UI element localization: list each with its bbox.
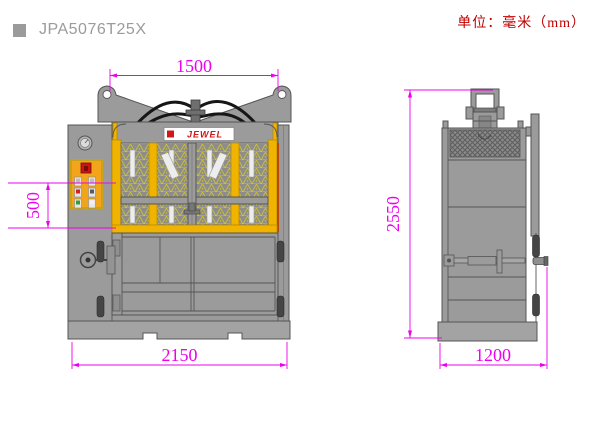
panel-key-switch <box>89 188 96 197</box>
cage-mid-post-right <box>231 143 239 225</box>
lug-hole-right <box>278 91 286 99</box>
technical-drawing: JEWEL <box>0 0 600 433</box>
side-mesh-panel <box>450 130 520 157</box>
dimension-value-overall-height: 2550 <box>383 196 403 232</box>
door-hinge <box>277 296 284 317</box>
side-door-hinges <box>533 233 549 322</box>
panel-button-red <box>75 188 82 197</box>
panel-button <box>75 177 82 186</box>
pressure-gauge-icon <box>78 136 92 150</box>
dimension-front-base-width: 2150 <box>72 342 287 369</box>
dimension-front-top-width: 1500 <box>110 56 278 91</box>
door-hinge <box>97 296 104 317</box>
cage-column-left <box>112 140 121 232</box>
front-view: JEWEL <box>68 86 291 339</box>
dimension-value-top-width: 1500 <box>176 56 212 76</box>
control-panel <box>71 160 102 208</box>
side-view <box>438 89 548 341</box>
front-base <box>68 321 290 339</box>
panel-button-green <box>75 199 82 208</box>
brand-logo-icon <box>167 131 174 138</box>
side-guide-channel <box>531 114 539 236</box>
latch-handle <box>497 250 502 273</box>
cage-mid-post-left <box>149 143 157 225</box>
dimension-value-depth: 1200 <box>475 345 511 365</box>
door-hinge <box>97 241 104 262</box>
brand-logo-text: JEWEL <box>187 130 223 140</box>
panel-button <box>89 177 96 186</box>
panel-button <box>89 199 96 208</box>
cage-column-right <box>268 140 277 232</box>
cage-sill <box>112 225 277 233</box>
door-hinge <box>277 241 284 262</box>
dimension-value-base-width: 2150 <box>162 345 198 365</box>
dimension-value-feed-opening: 500 <box>23 192 43 219</box>
side-base <box>438 322 537 341</box>
lug-hole-left <box>103 91 111 99</box>
drawing-page: JPA5076T25X 单位：毫米（mm） <box>0 0 600 433</box>
emergency-stop-button <box>81 163 91 173</box>
brand-label: JEWEL <box>164 128 234 141</box>
